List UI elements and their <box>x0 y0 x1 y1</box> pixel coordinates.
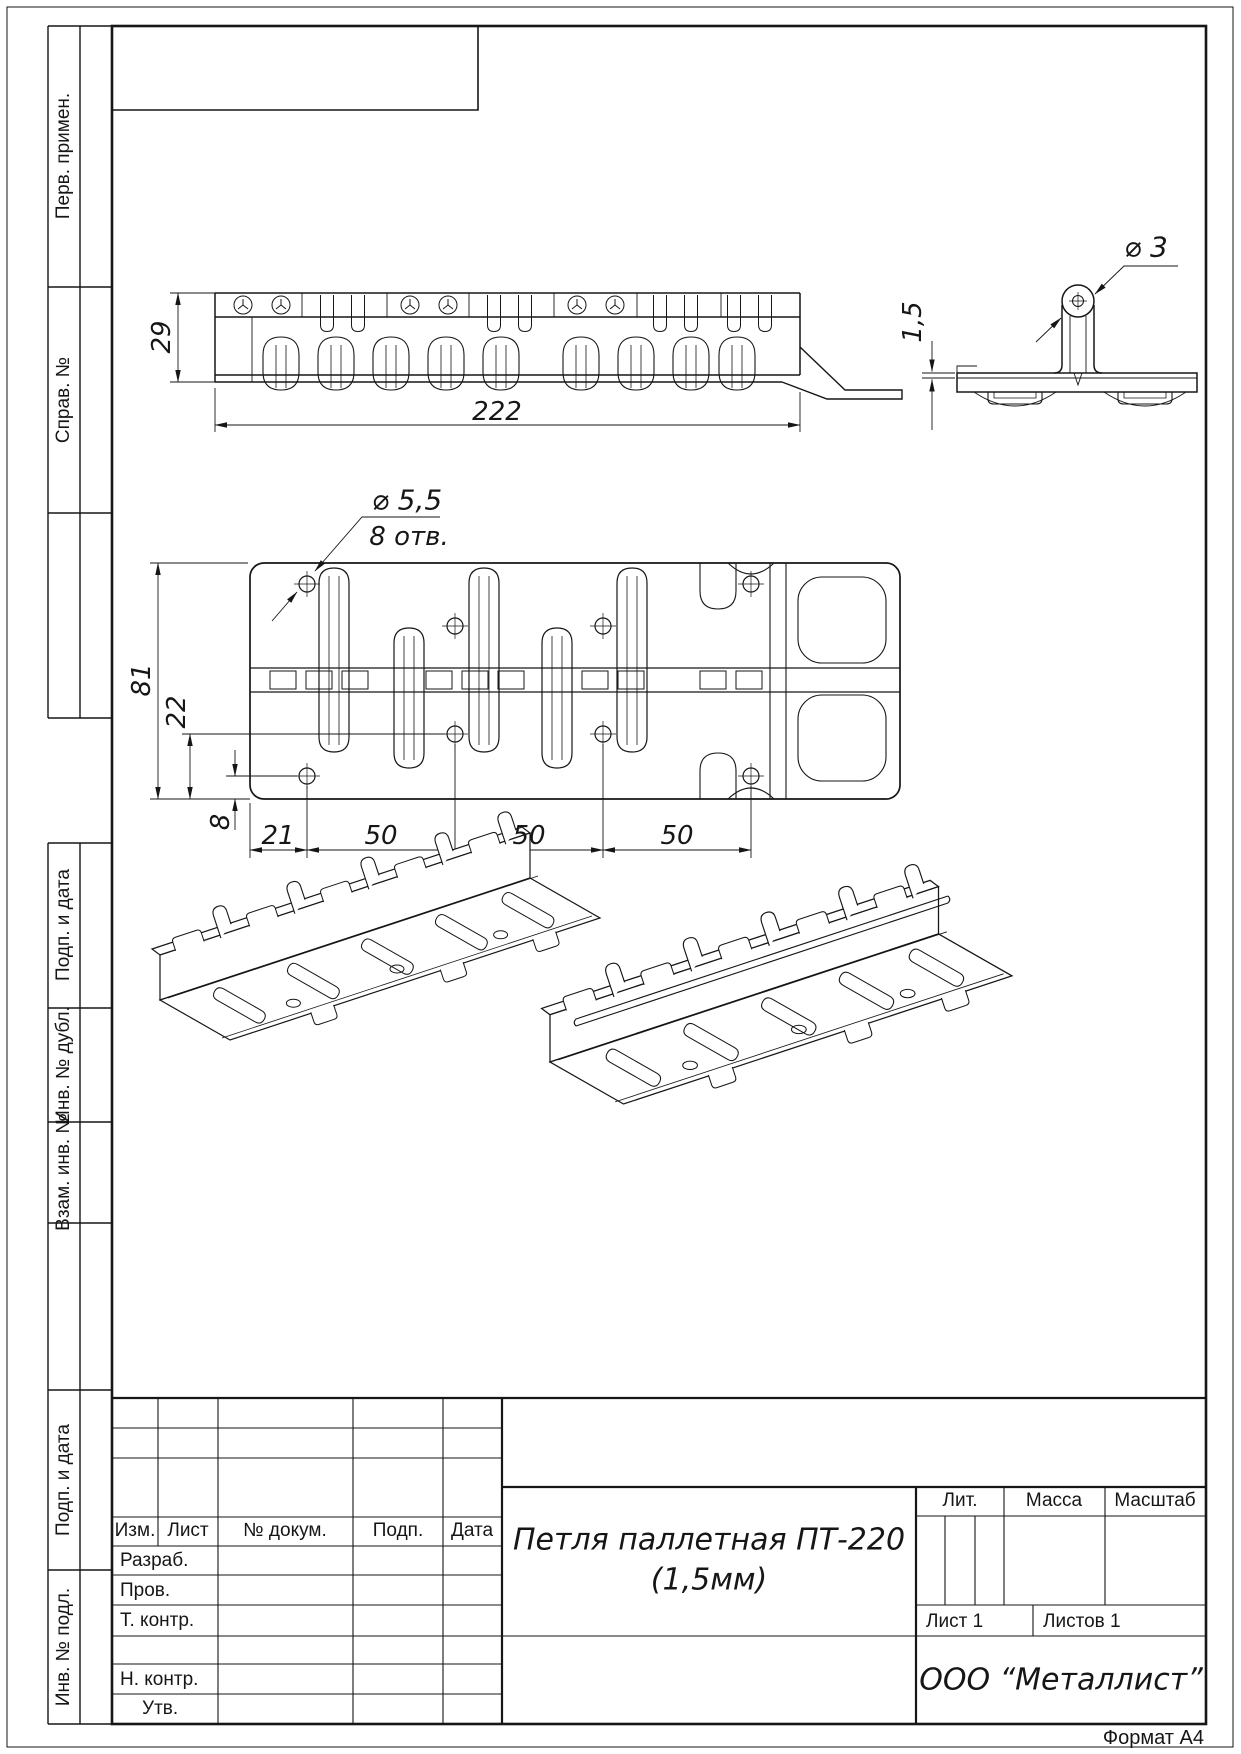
tb-col-list: Лист <box>167 1520 208 1542</box>
margin-label-perv-primen: Перв. примен. <box>53 93 75 219</box>
tb-mass-label: Масса <box>1026 1490 1082 1512</box>
dim-inner-hole-offset: 22 <box>162 695 192 728</box>
dim-pitch-1: 50 <box>364 821 397 851</box>
dimension-lines <box>150 266 1178 858</box>
tb-row-utv: Утв. <box>142 1698 178 1720</box>
margin-label-podp-data-1: Подп. и дата <box>53 869 75 981</box>
dim-outer-hole-offset: 8 <box>206 814 236 831</box>
tb-col-podp: Подп. <box>373 1520 423 1542</box>
dim-hole-diameter: ⌀ 5,5 <box>372 484 442 517</box>
margin-label-inv-dubl: Инв. № дубл. <box>53 1006 75 1124</box>
dim-pitch-2: 50 <box>512 821 545 851</box>
front-view <box>215 293 902 399</box>
side-view <box>957 285 1197 406</box>
tb-sheets-info: Листов 1 <box>1043 1611 1121 1633</box>
dim-front-length: 222 <box>472 397 522 427</box>
tb-row-prov: Пров. <box>120 1580 170 1602</box>
tb-col-data: Дата <box>451 1520 493 1542</box>
drawing-sheet: Перв. примен. Справ. № Подп. и дата Инв.… <box>0 0 1241 1754</box>
doc-title-line1: Петля паллетная ПТ-220 <box>513 1523 905 1558</box>
margin-label-inv-podl: Инв. № подл. <box>53 1588 75 1706</box>
tb-scale-label: Масштаб <box>1114 1490 1195 1512</box>
margin-label-vzam-inv: Взам. инв. № <box>53 1113 75 1231</box>
dim-hole-count: 8 отв. <box>369 522 448 552</box>
format-note: Формат А4 <box>1004 1727 1204 1750</box>
plan-view <box>250 563 900 799</box>
margin-label-podp-data-2: Подп. и дата <box>53 1424 75 1536</box>
isometric-views <box>152 810 1012 1104</box>
doc-title-line2: (1,5мм) <box>651 1563 767 1598</box>
dim-pin-diameter: ⌀ 3 <box>1124 231 1168 264</box>
dim-sheet-thickness: 1,5 <box>898 301 928 342</box>
dim-front-height: 29 <box>147 320 177 353</box>
margin-label-sprav-no: Справ. № <box>53 357 75 443</box>
tb-sheet-info: Лист 1 <box>926 1611 983 1633</box>
tb-company: ООО “Металлист” <box>919 1663 1202 1698</box>
tb-row-razrab: Разраб. <box>120 1550 188 1572</box>
tb-lit-label: Лит. <box>943 1490 978 1512</box>
isometric-view-right <box>542 863 1012 1104</box>
dim-edge-to-first-hole: 21 <box>261 821 294 851</box>
dim-pitch-3: 50 <box>660 821 693 851</box>
tb-row-nkontr: Н. контр. <box>120 1669 198 1691</box>
tb-col-dokum: № докум. <box>243 1520 326 1542</box>
tb-row-tkontr: Т. контр. <box>120 1610 194 1632</box>
tb-col-izm: Изм. <box>115 1520 156 1542</box>
dim-plan-width: 81 <box>127 663 157 696</box>
